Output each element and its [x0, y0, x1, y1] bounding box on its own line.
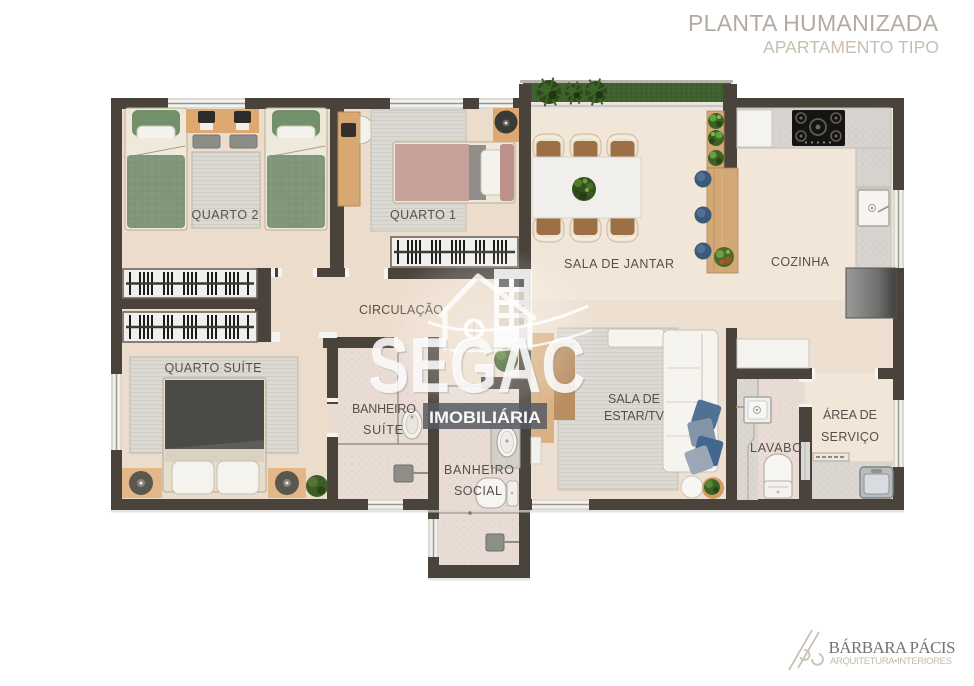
- svg-text:BÁRBARA PÁCIS: BÁRBARA PÁCIS: [829, 638, 956, 657]
- svg-text:ÁREA DE: ÁREA DE: [823, 407, 877, 422]
- svg-text:SUÍTE: SUÍTE: [363, 422, 403, 437]
- svg-text:QUARTO SUÍTE: QUARTO SUÍTE: [165, 360, 262, 375]
- svg-text:ESTAR/TV: ESTAR/TV: [604, 409, 665, 423]
- svg-text:SERVIÇO: SERVIÇO: [821, 430, 879, 444]
- svg-text:QUARTO 1: QUARTO 1: [390, 208, 456, 222]
- svg-text:SALA DE: SALA DE: [608, 392, 660, 406]
- svg-text:SOCIAL: SOCIAL: [454, 484, 502, 498]
- svg-text:COZINHA: COZINHA: [771, 255, 830, 269]
- svg-text:SALA DE JANTAR: SALA DE JANTAR: [564, 257, 674, 271]
- svg-text:APARTAMENTO TIPO: APARTAMENTO TIPO: [763, 37, 939, 57]
- svg-text:PLANTA HUMANIZADA: PLANTA HUMANIZADA: [688, 10, 939, 36]
- svg-text:QUARTO 2: QUARTO 2: [192, 208, 259, 222]
- svg-text:IMOBILIÁRIA: IMOBILIÁRIA: [429, 408, 541, 427]
- svg-text:SEGAC: SEGAC: [369, 321, 586, 409]
- svg-text:LAVABO: LAVABO: [750, 441, 802, 455]
- svg-text:ARQUITETURA•INTERIORES: ARQUITETURA•INTERIORES: [830, 656, 952, 667]
- svg-text:BANHEIRO: BANHEIRO: [444, 463, 514, 477]
